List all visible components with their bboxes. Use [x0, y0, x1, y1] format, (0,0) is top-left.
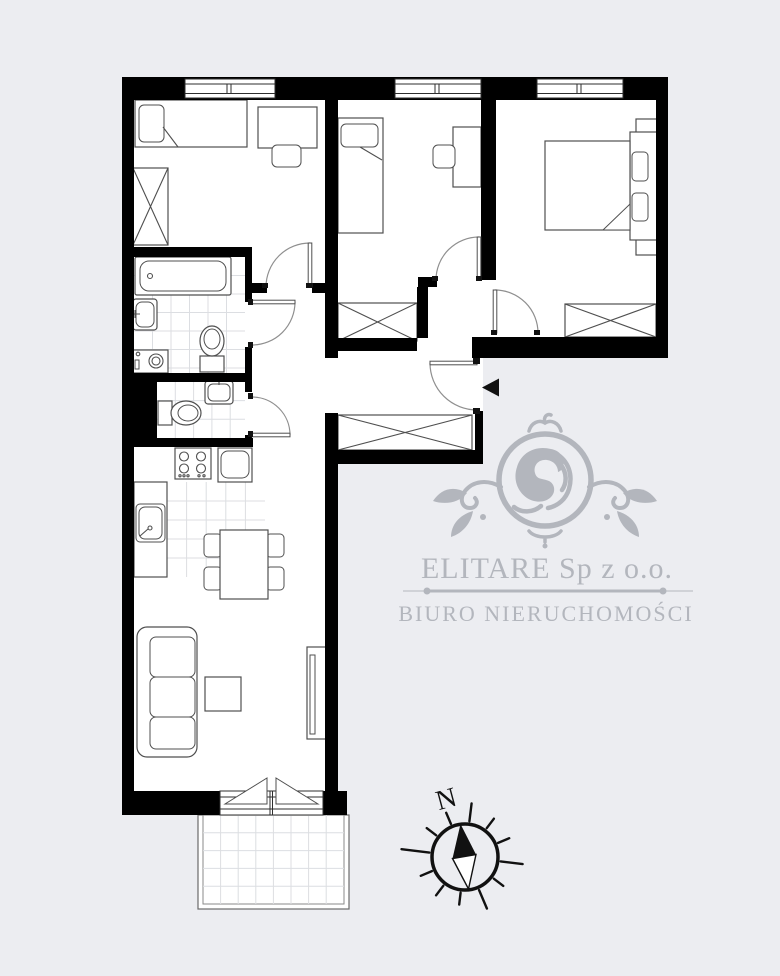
stove-icon: [175, 448, 211, 479]
watermark-company: ELITARE Sp z o.o.: [421, 552, 673, 585]
washing-machine-icon: [133, 350, 168, 373]
wall-segment: [245, 257, 252, 302]
wall-segment: [656, 77, 668, 358]
wall-segment: [325, 338, 417, 351]
toilet-icon: [158, 401, 201, 425]
wall-segment: [122, 373, 247, 382]
wall-segment: [325, 450, 483, 464]
wall-segment: [128, 382, 157, 447]
wall-segment: [312, 283, 327, 293]
single-bed-icon: [135, 100, 247, 147]
wall-segment: [323, 791, 347, 815]
wardrobe-icon: [565, 304, 656, 337]
wall-segment: [325, 100, 338, 358]
north-needle-icon: [453, 824, 477, 889]
window: [185, 79, 275, 98]
wall-segment: [417, 287, 428, 338]
wall-segment: [153, 438, 253, 447]
wall-segment: [325, 413, 338, 791]
wardrobe-icon: [338, 303, 417, 341]
balcony: [198, 815, 349, 909]
entrance-arrow-icon: [482, 379, 499, 397]
coffee-table-icon: [205, 677, 241, 711]
hallway-furniture: [338, 415, 472, 450]
watermark-divider: [403, 588, 693, 595]
bathtub-icon: [135, 257, 231, 295]
floor-plan-canvas: ELITARE Sp z o.o. BIURO NIERUCHOMOŚCI: [0, 0, 780, 976]
toilet-icon: [200, 326, 224, 372]
kitchen-counter-icon: [218, 448, 252, 482]
wardrobe-icon: [133, 168, 168, 245]
double-bed-icon: [545, 132, 657, 240]
floor-plan-page: ELITARE Sp z o.o. BIURO NIERUCHOMOŚCI: [0, 0, 780, 976]
window: [395, 79, 481, 98]
washbasin-icon: [130, 299, 157, 330]
north-label: N: [433, 782, 461, 817]
watermark-subtitle: BIURO NIERUCHOMOŚCI: [398, 601, 693, 626]
wall-segment: [122, 247, 252, 257]
compass-rose: N: [402, 782, 523, 909]
wall-segment: [472, 337, 668, 358]
wall-segment: [245, 347, 252, 392]
kitchen-sink-icon: [134, 482, 167, 577]
wall-segment: [122, 791, 220, 815]
wardrobe-icon: [338, 415, 472, 450]
wall-segment: [481, 100, 496, 280]
sofa-icon: [137, 627, 197, 757]
windows: [185, 79, 623, 98]
window: [537, 79, 623, 98]
single-bed-icon: [338, 118, 383, 233]
tv-cabinet-icon: [307, 647, 326, 739]
